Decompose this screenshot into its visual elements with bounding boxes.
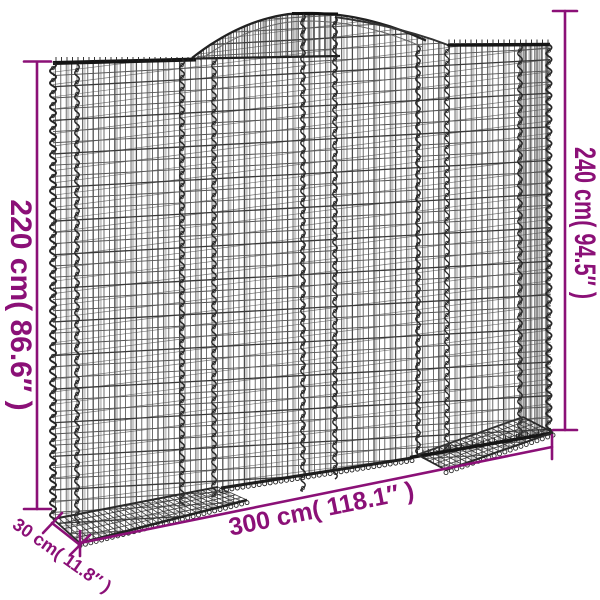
front-height-label: 220 cm( 86.6″ ) xyxy=(1,165,35,445)
back-height-label: 240 cm( 94.5″ ) xyxy=(565,122,599,324)
gabion-dimension-diagram: 220 cm( 86.6″ ) 240 cm( 94.5″ ) 300 cm( … xyxy=(0,0,600,600)
